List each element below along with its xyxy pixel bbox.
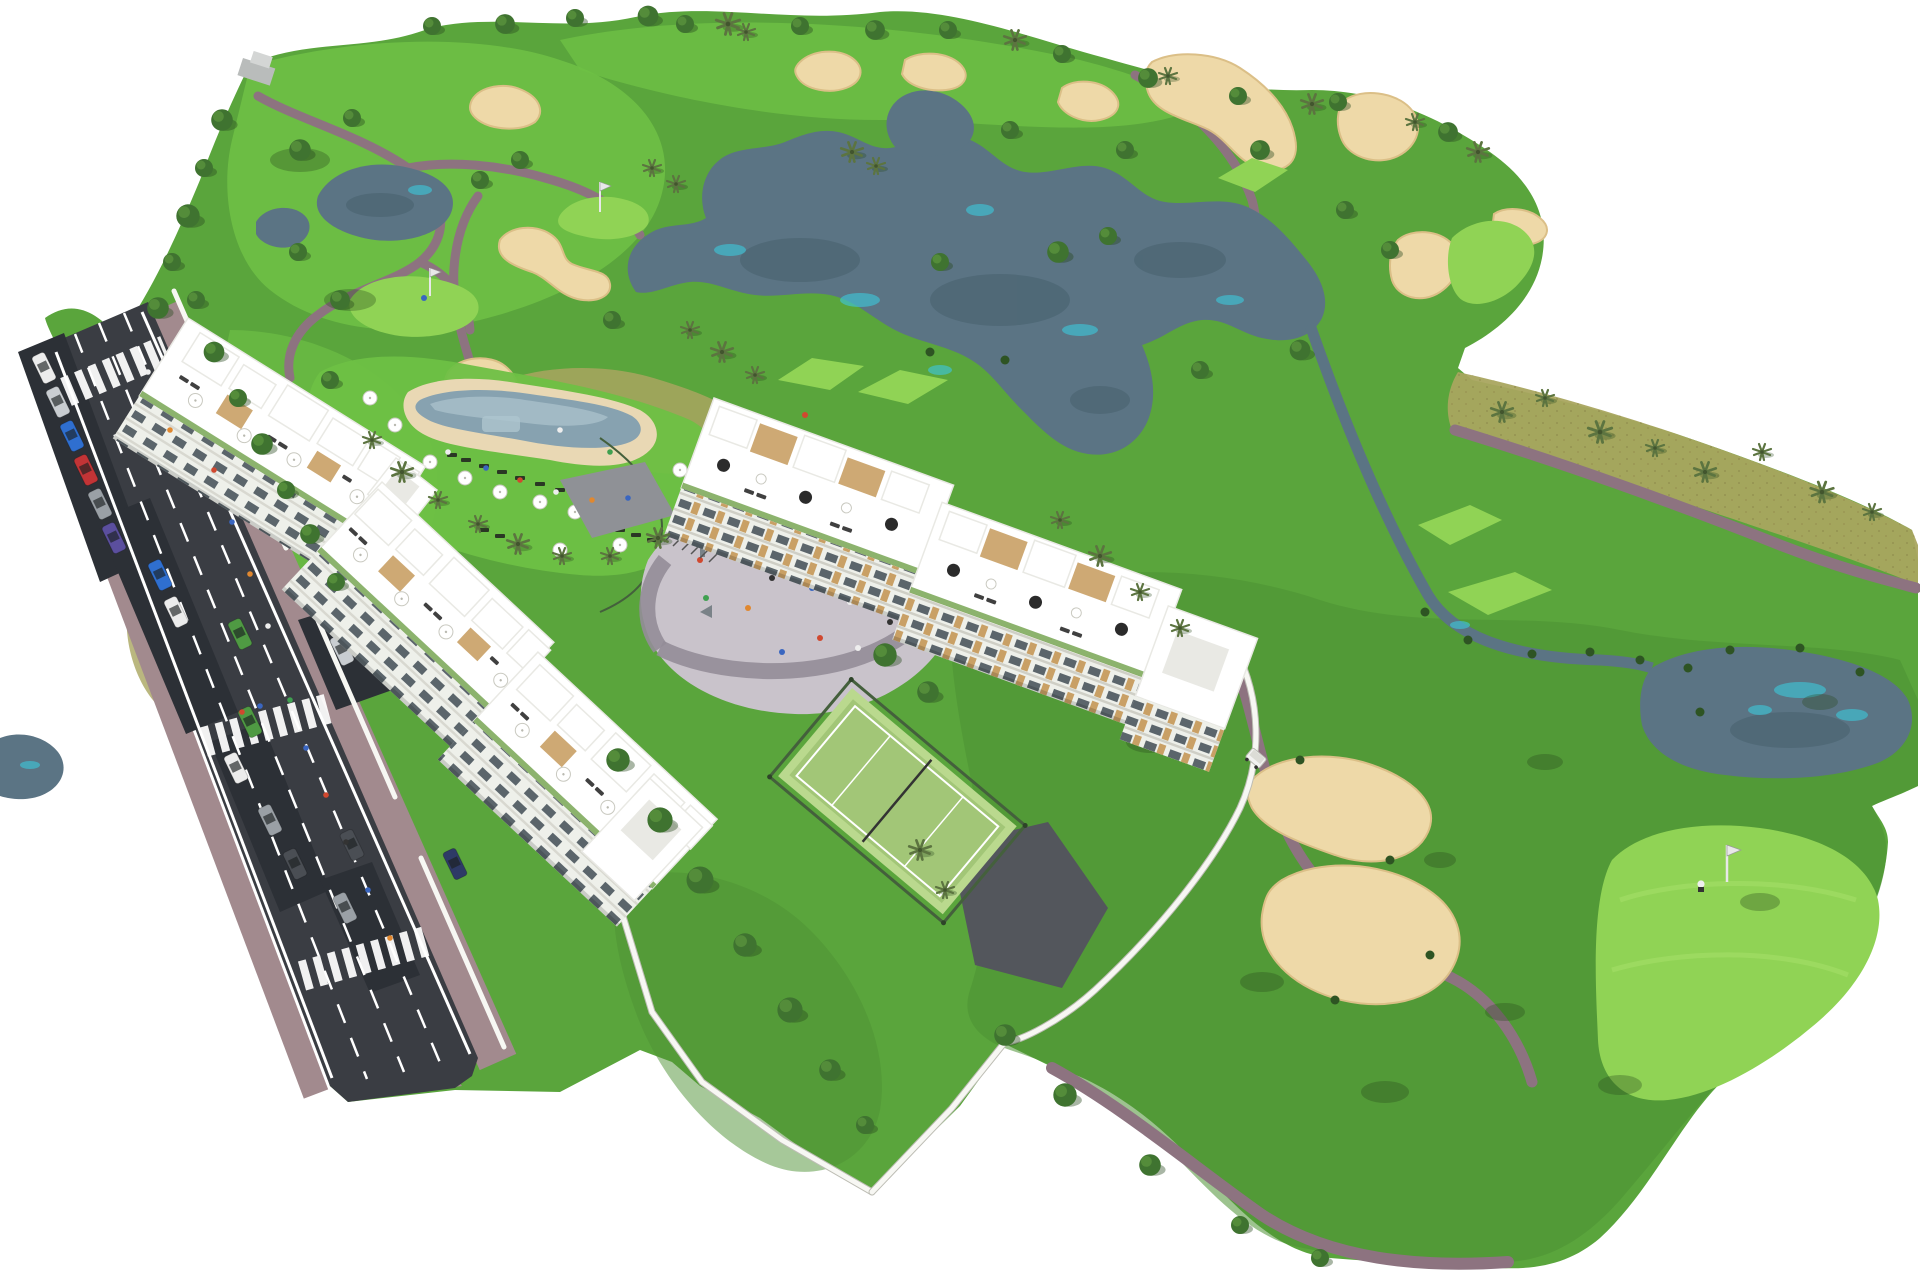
bush [1528,650,1537,659]
bush [926,348,935,357]
tree [566,9,588,27]
bush [1796,644,1805,653]
bush [1386,856,1395,865]
person [802,412,808,418]
tree [1139,1154,1165,1176]
bush [1684,664,1693,673]
bush [1296,756,1305,765]
jacuzzi [482,416,520,432]
palm-tree [1753,444,1774,460]
bush [1464,636,1473,645]
site-plan-render [0,0,1920,1280]
render-canvas [0,0,1920,1280]
golfer [1697,880,1704,892]
bush [1001,356,1010,365]
bush [1586,648,1595,657]
bush [1331,996,1340,1005]
tree [1438,122,1462,142]
bush [1696,708,1705,717]
bush [1856,668,1865,677]
bush [1726,646,1735,655]
bush [1636,656,1645,665]
bush [1421,608,1430,617]
bush [1426,951,1435,960]
